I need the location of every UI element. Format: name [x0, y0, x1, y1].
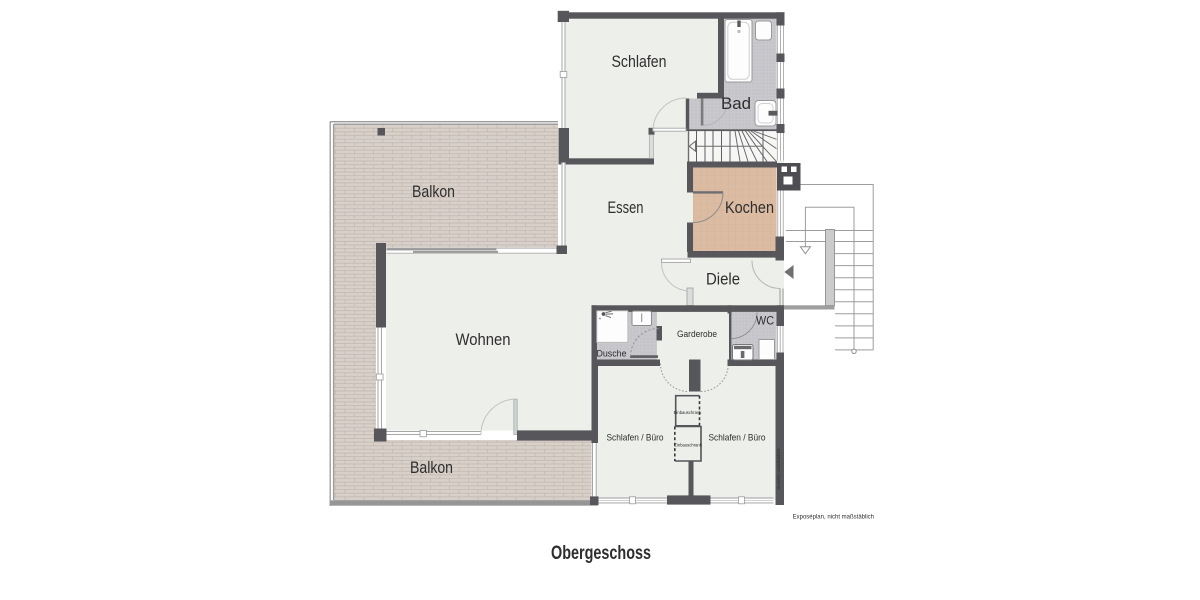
svg-text:Bad: Bad	[721, 94, 751, 113]
svg-text:Schlafen / Büro: Schlafen / Büro	[607, 433, 664, 444]
svg-text:Garderobe: Garderobe	[677, 329, 717, 340]
svg-text:Balkon: Balkon	[410, 458, 453, 477]
svg-text:Einbauschrank: Einbauschrank	[674, 410, 703, 415]
svg-text:Kochen: Kochen	[725, 198, 774, 217]
svg-text:Einbauschrank: Einbauschrank	[674, 443, 703, 448]
svg-text:Balkon: Balkon	[412, 182, 455, 201]
svg-text:Essen: Essen	[608, 198, 644, 217]
svg-text:WC: WC	[756, 316, 774, 328]
svg-text:Grundriss unmaßstäblich: Grundriss unmaßstäblich	[776, 448, 781, 489]
svg-text:Obergeschoss: Obergeschoss	[551, 543, 651, 564]
svg-text:Diele: Diele	[706, 270, 740, 289]
svg-text:Wohnen: Wohnen	[456, 330, 511, 349]
svg-text:Schlafen / Büro: Schlafen / Büro	[709, 433, 766, 444]
svg-text:Exposéplan, nicht maßstäblich: Exposéplan, nicht maßstäblich	[793, 515, 874, 521]
svg-text:Dusche: Dusche	[597, 349, 627, 360]
svg-text:Schlafen: Schlafen	[612, 52, 667, 71]
